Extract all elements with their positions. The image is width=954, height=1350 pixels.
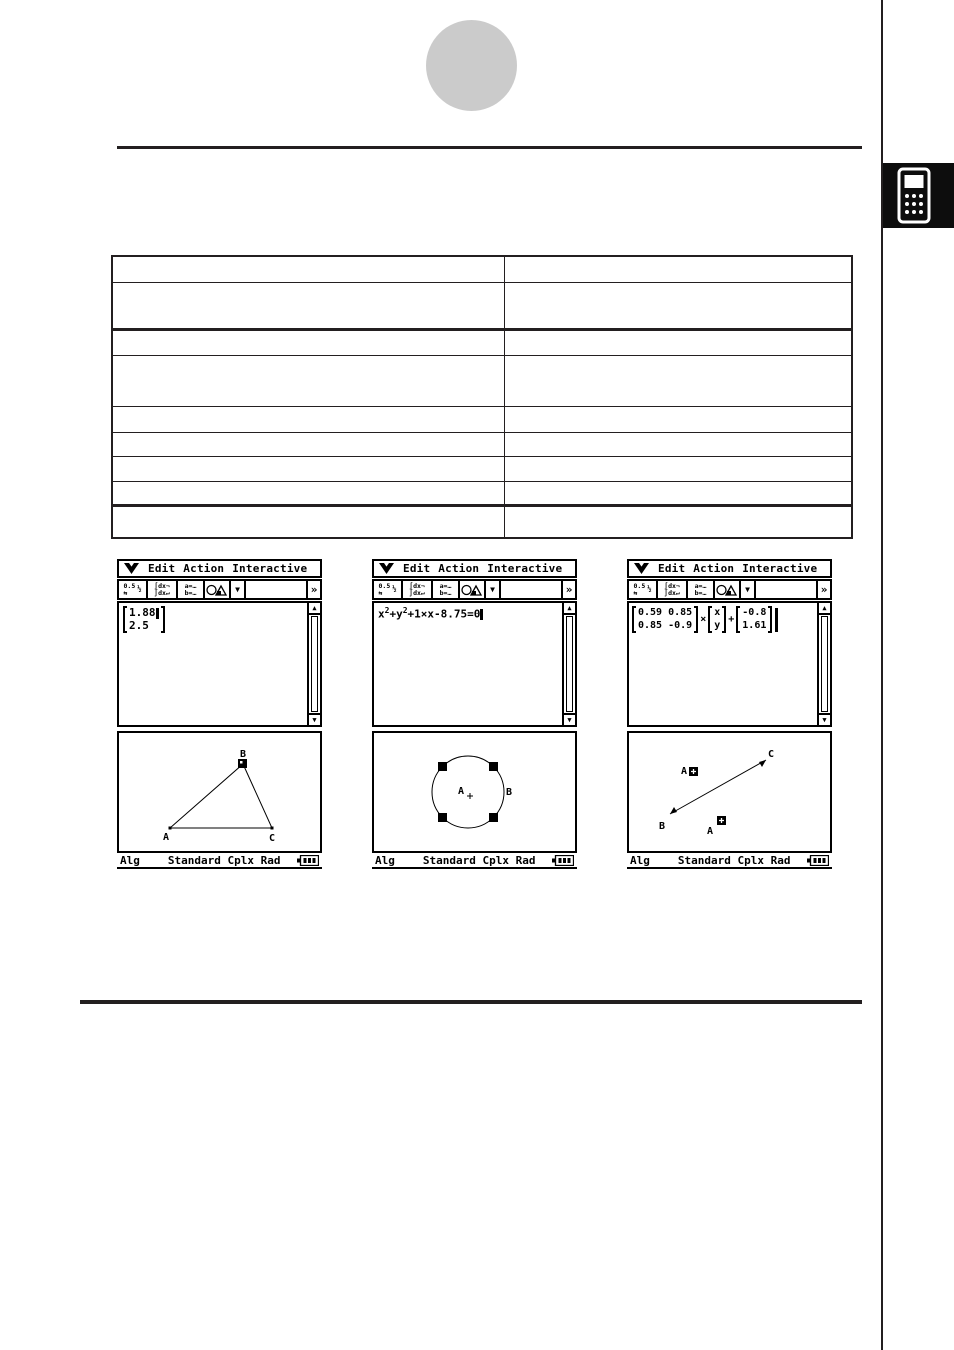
equation-text: +y bbox=[389, 608, 402, 621]
matrix-value: 0.59 0.85 bbox=[638, 607, 692, 619]
frac-half-label: ½ bbox=[647, 586, 651, 593]
menu-item-interactive[interactable]: Interactive bbox=[742, 562, 817, 575]
table-cell bbox=[113, 356, 505, 406]
equation-text: x bbox=[378, 608, 385, 621]
selection-handle[interactable] bbox=[438, 762, 447, 771]
settings-indicator[interactable]: Standard Cplx Rad bbox=[168, 854, 281, 867]
table-cell bbox=[505, 331, 851, 355]
menu-item-action[interactable]: Action bbox=[183, 562, 224, 575]
matrix-value: x bbox=[714, 607, 720, 619]
table-row bbox=[113, 433, 851, 457]
point-label-a: A bbox=[458, 786, 464, 797]
table-row bbox=[113, 257, 851, 283]
calculator-screenshot-1: Edit Action Interactive 0.5⇆ ½ ∫dx¬∫dx↵ … bbox=[117, 559, 322, 869]
solve-ab-button[interactable]: a=…b=… bbox=[688, 581, 715, 598]
calculator-section-tab bbox=[883, 163, 954, 228]
menu-bar: Edit Action Interactive bbox=[117, 559, 322, 578]
table-row bbox=[113, 283, 851, 331]
point-label-a: A bbox=[707, 826, 713, 837]
geometry-shapes-icon bbox=[461, 583, 483, 597]
bottom-section-rule bbox=[80, 1000, 862, 1004]
toolbar: 0.5⇆ ½ ∫dx¬∫dx↵ a=…b=… ▼ » bbox=[117, 579, 322, 600]
menu-item-edit[interactable]: Edit bbox=[148, 562, 175, 575]
table-cell bbox=[505, 257, 851, 282]
classpad-menu-icon[interactable] bbox=[378, 562, 395, 575]
fraction-convert-button[interactable]: 0.5⇆ ½ bbox=[629, 581, 658, 598]
settings-indicator[interactable]: Standard Cplx Rad bbox=[423, 854, 536, 867]
toolbar: 0.5⇆ ½ ∫dx¬∫dx↵ a=…b=… ▼ » bbox=[372, 579, 577, 600]
point-label-a: A bbox=[163, 832, 169, 843]
table-cell bbox=[505, 407, 851, 432]
geometry-shapes-icon bbox=[206, 583, 228, 597]
selection-handle[interactable] bbox=[438, 813, 447, 822]
point-label-b: B bbox=[659, 821, 665, 832]
status-bar: Alg Standard Cplx Rad bbox=[372, 854, 577, 869]
constant-vector: -0.8 1.61 bbox=[736, 606, 772, 633]
scroll-track[interactable] bbox=[566, 616, 573, 712]
scroll-up-button[interactable]: ▲ bbox=[309, 603, 320, 615]
scroll-down-button[interactable]: ▼ bbox=[819, 713, 830, 725]
matrix-value: -0.8 bbox=[742, 607, 766, 619]
geometry-shapes-button[interactable] bbox=[460, 581, 486, 598]
toolbar-spacer bbox=[246, 581, 306, 598]
dropdown-arrow-icon: ▼ bbox=[490, 586, 495, 594]
table-cell bbox=[505, 507, 851, 537]
battery-icon bbox=[296, 855, 319, 866]
dropdown-arrow-icon: ▼ bbox=[745, 586, 750, 594]
matrix-value: 0.85 -0.9 bbox=[638, 620, 692, 632]
chapter-number-circle bbox=[426, 20, 517, 111]
table-cell bbox=[113, 482, 505, 504]
table-row bbox=[113, 407, 851, 433]
more-chevrons-icon: » bbox=[311, 583, 318, 596]
matrix-right-bracket bbox=[161, 606, 165, 633]
status-bar: Alg Standard Cplx Rad bbox=[117, 854, 322, 869]
table-cell bbox=[505, 433, 851, 456]
b-equals-label: b=… bbox=[440, 590, 452, 597]
text-cursor bbox=[480, 609, 483, 620]
toolbar-more-button[interactable]: » bbox=[816, 581, 830, 598]
plus-operator: + bbox=[728, 614, 734, 625]
frac-arrows-icon: ⇆ bbox=[379, 590, 383, 597]
command-reference-table bbox=[111, 255, 853, 539]
scroll-down-button[interactable]: ▼ bbox=[564, 713, 575, 725]
table-row bbox=[113, 457, 851, 482]
scroll-down-icon: ▼ bbox=[822, 716, 826, 724]
status-bar: Alg Standard Cplx Rad bbox=[627, 854, 832, 869]
toolbar-spacer bbox=[756, 581, 816, 598]
table-cell bbox=[505, 457, 851, 481]
multiply-operator: × bbox=[700, 614, 706, 625]
table-cell bbox=[113, 507, 505, 537]
table-cell bbox=[505, 283, 851, 328]
toolbar-dropdown-button[interactable]: ▼ bbox=[486, 581, 501, 598]
classpad-menu-icon[interactable] bbox=[633, 562, 650, 575]
work-area[interactable]: x2+y2+1×x-8.75=0 ▲ ▼ bbox=[372, 601, 577, 727]
scrollbar[interactable]: ▲ ▼ bbox=[307, 603, 320, 725]
menu-item-edit[interactable]: Edit bbox=[658, 562, 685, 575]
triangle-figure: A B C bbox=[119, 733, 320, 851]
toolbar-more-button[interactable]: » bbox=[561, 581, 575, 598]
menu-item-interactive[interactable]: Interactive bbox=[232, 562, 307, 575]
table-cell bbox=[505, 356, 851, 406]
result-matrix: 1.88 2.5 bbox=[123, 606, 165, 633]
geometry-shapes-button[interactable] bbox=[205, 581, 231, 598]
calculator-icon bbox=[896, 167, 932, 225]
point-label-a: A bbox=[681, 766, 687, 777]
coefficient-matrix: 0.59 0.85 0.85 -0.9 bbox=[632, 606, 698, 633]
integral-bottom-label: ∫dx↵ bbox=[664, 590, 680, 597]
menu-item-interactive[interactable]: Interactive bbox=[487, 562, 562, 575]
battery-icon bbox=[551, 855, 574, 866]
table-cell bbox=[113, 283, 505, 328]
integral-button[interactable]: ∫dx¬∫dx↵ bbox=[148, 581, 178, 598]
frac-arrows-icon: ⇆ bbox=[634, 590, 638, 597]
scroll-track[interactable] bbox=[311, 616, 318, 712]
dropdown-arrow-icon: ▼ bbox=[235, 586, 240, 594]
geometry-shapes-icon bbox=[716, 583, 738, 597]
more-chevrons-icon: » bbox=[566, 583, 573, 596]
scroll-down-icon: ▼ bbox=[312, 716, 316, 724]
scroll-down-button[interactable]: ▼ bbox=[309, 713, 320, 725]
scrollbar[interactable]: ▲ ▼ bbox=[817, 603, 830, 725]
matrix-right-bracket bbox=[694, 606, 698, 633]
work-area[interactable]: 1.88 2.5 ▲ ▼ bbox=[117, 601, 322, 727]
scroll-up-icon: ▲ bbox=[822, 604, 826, 612]
scroll-up-icon: ▲ bbox=[312, 604, 316, 612]
point-label-c: C bbox=[269, 833, 275, 844]
variable-vector: x y bbox=[708, 606, 726, 633]
scroll-up-icon: ▲ bbox=[567, 604, 571, 612]
matrix-value: y bbox=[714, 620, 720, 632]
menu-bar: Edit Action Interactive bbox=[627, 559, 832, 578]
integral-button[interactable]: ∫dx¬∫dx↵ bbox=[403, 581, 433, 598]
battery-icon bbox=[806, 855, 829, 866]
scroll-track[interactable] bbox=[821, 616, 828, 712]
b-equals-label: b=… bbox=[185, 590, 197, 597]
top-section-rule bbox=[117, 146, 862, 149]
text-cursor bbox=[775, 608, 778, 632]
point-label-b: B bbox=[506, 787, 512, 798]
table-cell bbox=[113, 257, 505, 282]
fraction-convert-button[interactable]: 0.5⇆ ½ bbox=[374, 581, 403, 598]
scroll-down-icon: ▼ bbox=[567, 716, 571, 724]
circle-figure: A B bbox=[374, 733, 575, 851]
matrix-right-bracket bbox=[722, 606, 726, 633]
scroll-up-button[interactable]: ▲ bbox=[564, 603, 575, 615]
scroll-up-button[interactable]: ▲ bbox=[819, 603, 830, 615]
table-cell bbox=[113, 331, 505, 355]
matrix-value: 1.88 bbox=[129, 606, 156, 619]
toolbar-more-button[interactable]: » bbox=[306, 581, 320, 598]
fraction-convert-button[interactable]: 0.5⇆ ½ bbox=[119, 581, 148, 598]
b-equals-label: b=… bbox=[695, 590, 707, 597]
selection-handle[interactable] bbox=[489, 813, 498, 822]
table-row bbox=[113, 482, 851, 507]
point-label-c: C bbox=[768, 749, 774, 760]
equation-text: +1×x-8.75=0 bbox=[408, 608, 481, 621]
text-cursor bbox=[156, 608, 159, 619]
classpad-menu-icon[interactable] bbox=[123, 562, 140, 575]
table-cell bbox=[113, 457, 505, 481]
frac-half-label: ½ bbox=[137, 586, 141, 593]
menu-bar: Edit Action Interactive bbox=[372, 559, 577, 578]
integral-button[interactable]: ∫dx¬∫dx↵ bbox=[658, 581, 688, 598]
point-label-b: B bbox=[240, 749, 246, 760]
entry-line[interactable]: 0.59 0.85 0.85 -0.9 × x y + bbox=[632, 606, 815, 633]
table-row bbox=[113, 507, 851, 537]
work-area[interactable]: 0.59 0.85 0.85 -0.9 × x y + bbox=[627, 601, 832, 727]
frac-half-label: ½ bbox=[392, 586, 396, 593]
matrix-value: 2.5 bbox=[129, 620, 159, 632]
integral-bottom-label: ∫dx↵ bbox=[154, 590, 170, 597]
settings-indicator[interactable]: Standard Cplx Rad bbox=[678, 854, 791, 867]
selection-handle[interactable] bbox=[489, 762, 498, 771]
entry-line[interactable]: x2+y2+1×x-8.75=0 bbox=[378, 606, 560, 621]
table-cell bbox=[113, 407, 505, 432]
geometry-window[interactable]: A B C A bbox=[627, 731, 832, 853]
toolbar: 0.5⇆ ½ ∫dx¬∫dx↵ a=…b=… ▼ » bbox=[627, 579, 832, 600]
menu-item-edit[interactable]: Edit bbox=[403, 562, 430, 575]
more-chevrons-icon: » bbox=[821, 583, 828, 596]
toolbar-spacer bbox=[501, 581, 561, 598]
scrollbar[interactable]: ▲ ▼ bbox=[562, 603, 575, 725]
table-cell bbox=[505, 482, 851, 504]
geometry-window[interactable]: A B C bbox=[117, 731, 322, 853]
calculator-screenshot-2: Edit Action Interactive 0.5⇆ ½ ∫dx¬∫dx↵ … bbox=[372, 559, 577, 869]
solve-ab-button[interactable]: a=…b=… bbox=[178, 581, 205, 598]
toolbar-dropdown-button[interactable]: ▼ bbox=[741, 581, 756, 598]
table-row bbox=[113, 331, 851, 356]
solve-ab-button[interactable]: a=…b=… bbox=[433, 581, 460, 598]
frac-arrows-icon: ⇆ bbox=[124, 590, 128, 597]
integral-bottom-label: ∫dx↵ bbox=[409, 590, 425, 597]
geometry-window[interactable]: A B bbox=[372, 731, 577, 853]
entry-line[interactable]: 1.88 2.5 bbox=[123, 606, 305, 636]
table-row bbox=[113, 356, 851, 407]
geometry-shapes-button[interactable] bbox=[715, 581, 741, 598]
mode-indicator[interactable]: Alg bbox=[630, 854, 650, 867]
mode-indicator[interactable]: Alg bbox=[120, 854, 140, 867]
segment-figure: A B C A bbox=[629, 733, 830, 851]
calculator-screenshot-3: Edit Action Interactive 0.5⇆ ½ ∫dx¬∫dx↵ … bbox=[627, 559, 832, 869]
matrix-value: 1.61 bbox=[742, 620, 766, 632]
toolbar-dropdown-button[interactable]: ▼ bbox=[231, 581, 246, 598]
menu-item-action[interactable]: Action bbox=[438, 562, 479, 575]
mode-indicator[interactable]: Alg bbox=[375, 854, 395, 867]
table-cell bbox=[113, 433, 505, 456]
menu-item-action[interactable]: Action bbox=[693, 562, 734, 575]
matrix-right-bracket bbox=[768, 606, 772, 633]
manual-page: Edit Action Interactive 0.5⇆ ½ ∫dx¬∫dx↵ … bbox=[0, 0, 954, 1350]
